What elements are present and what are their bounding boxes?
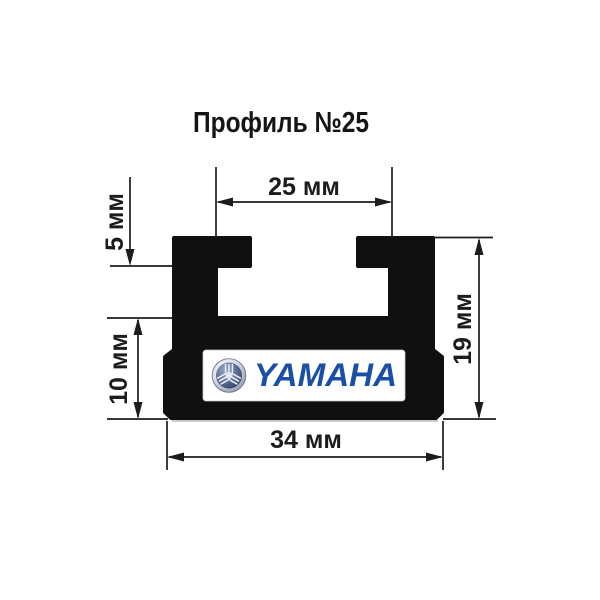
- dim-lower-height-label: 10 мм: [105, 333, 133, 405]
- arrow-10-up-icon: [134, 318, 143, 335]
- page-title: Профиль №25: [193, 107, 369, 139]
- arrow-10-down-icon: [134, 402, 143, 419]
- diagram-page: Профиль №25: [0, 0, 600, 600]
- dim-base-width-label: 34 мм: [270, 426, 342, 454]
- drawing-svg: Профиль №25: [0, 0, 600, 600]
- dim-slot-width-label: 25 мм: [268, 173, 340, 201]
- yamaha-wordmark: YAMAHA: [254, 357, 397, 393]
- arrow-25-left-icon: [216, 198, 233, 207]
- dim-total-height-label: 19 мм: [449, 293, 477, 365]
- arrow-19-down-icon: [475, 402, 484, 419]
- arrow-34-right-icon: [426, 453, 443, 462]
- dim-flange-height-label: 5 мм: [101, 193, 129, 251]
- yamaha-tuning-forks-icon: [212, 359, 246, 393]
- arrow-25-right-icon: [375, 198, 392, 207]
- arrow-19-up-icon: [475, 238, 484, 255]
- yamaha-logo-plate: YAMAHA: [203, 350, 405, 401]
- arrow-34-left-icon: [167, 453, 184, 462]
